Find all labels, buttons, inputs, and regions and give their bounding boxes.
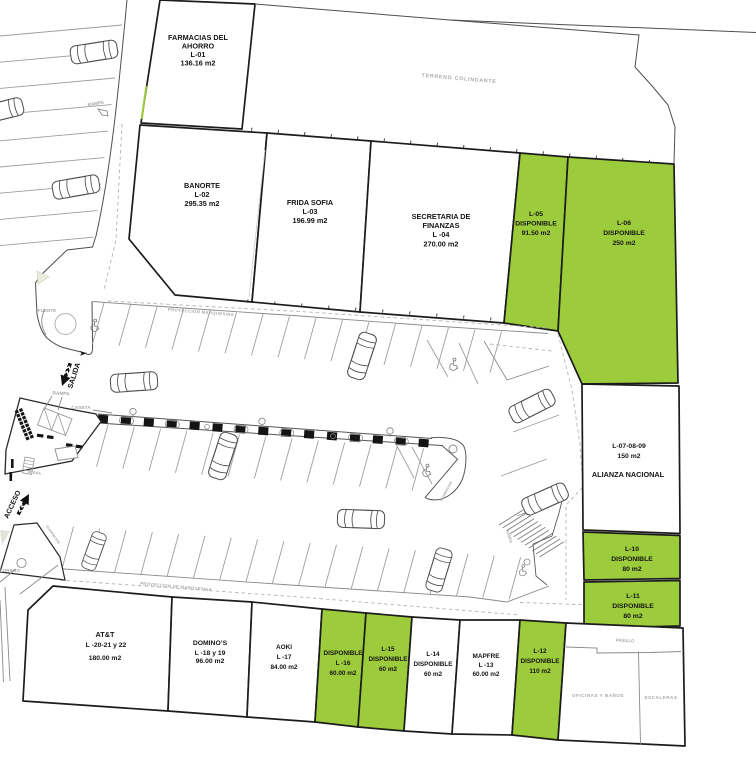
- svg-text:180.00 m2: 180.00 m2: [89, 655, 122, 662]
- svg-text:150 m2: 150 m2: [617, 453, 640, 460]
- svg-text:L -20-21 y 22: L -20-21 y 22: [86, 642, 127, 649]
- svg-text:L -16: L -16: [336, 660, 351, 667]
- svg-text:60.00 m2: 60.00 m2: [329, 670, 356, 677]
- svg-text:DISPONIBLE: DISPONIBLE: [368, 656, 408, 663]
- svg-text:60 m2: 60 m2: [379, 666, 398, 673]
- svg-text:ALIANZA NACIONAL: ALIANZA NACIONAL: [592, 470, 665, 479]
- svg-text:BANORTE: BANORTE: [184, 181, 220, 190]
- svg-text:ESCALERAS: ESCALERAS: [645, 695, 678, 700]
- svg-text:295.35 m2: 295.35 m2: [185, 199, 220, 208]
- svg-text:DOMINO’S: DOMINO’S: [193, 640, 228, 647]
- svg-text:L -17: L -17: [277, 654, 292, 661]
- svg-text:91.50 m2: 91.50 m2: [522, 230, 551, 237]
- svg-text:FRIDA SOFIA: FRIDA SOFIA: [287, 198, 334, 207]
- svg-text:L -04: L -04: [433, 230, 451, 239]
- svg-text:CASETA: CASETA: [71, 405, 91, 411]
- svg-text:110 m2: 110 m2: [529, 668, 551, 675]
- svg-text:L-06: L-06: [617, 220, 631, 227]
- svg-text:96.00 m2: 96.00 m2: [196, 658, 225, 665]
- svg-text:PASILLO: PASILLO: [616, 638, 635, 644]
- svg-text:DISPONIBLE: DISPONIBLE: [611, 556, 653, 563]
- svg-text:RAMPA: RAMPA: [52, 391, 70, 398]
- svg-text:FINANZAS: FINANZAS: [423, 221, 460, 230]
- svg-text:AOKI: AOKI: [276, 644, 292, 651]
- svg-text:L-02: L-02: [194, 190, 209, 199]
- svg-text:MAPFRE: MAPFRE: [473, 653, 501, 660]
- svg-text:60.00 m2: 60.00 m2: [472, 671, 499, 678]
- svg-text:DISPONIBLE: DISPONIBLE: [323, 650, 363, 657]
- svg-text:L-15: L-15: [381, 646, 395, 653]
- svg-text:136.16 m2: 136.16 m2: [181, 59, 216, 68]
- svg-text:L-10: L-10: [625, 546, 639, 553]
- svg-text:FUENTE: FUENTE: [38, 308, 56, 313]
- svg-text:DISPONIBLE: DISPONIBLE: [603, 230, 645, 237]
- svg-text:270.00 m2: 270.00 m2: [424, 240, 459, 249]
- svg-text:L-07-08-09: L-07-08-09: [612, 443, 646, 450]
- svg-text:L-05: L-05: [529, 211, 543, 218]
- svg-text:DISPONIBLE: DISPONIBLE: [520, 658, 560, 665]
- svg-text:L-03: L-03: [302, 207, 317, 216]
- svg-text:L-12: L-12: [533, 648, 547, 655]
- svg-text:DISPONIBLE: DISPONIBLE: [413, 661, 453, 668]
- svg-text:AT&T: AT&T: [96, 630, 115, 639]
- svg-text:L-11: L-11: [626, 593, 640, 600]
- svg-text:L-14: L-14: [426, 651, 440, 658]
- svg-text:84.00 m2: 84.00 m2: [270, 664, 297, 671]
- svg-text:DISPONIBLE: DISPONIBLE: [515, 221, 557, 228]
- svg-text:SECRETARIA DE: SECRETARIA DE: [412, 212, 471, 221]
- svg-text:80 m2: 80 m2: [623, 613, 642, 620]
- svg-text:L -13: L -13: [479, 662, 494, 669]
- svg-text:DISPONIBLE: DISPONIBLE: [612, 603, 654, 610]
- svg-text:L -18 y 19: L -18 y 19: [195, 650, 226, 657]
- svg-text:OFICINAS Y BAÑOS: OFICINAS Y BAÑOS: [572, 692, 624, 698]
- svg-text:60 m2: 60 m2: [424, 671, 443, 678]
- svg-text:196.99 m2: 196.99 m2: [293, 216, 328, 225]
- svg-text:80 m2: 80 m2: [622, 566, 641, 573]
- svg-text:250 m2: 250 m2: [612, 240, 635, 247]
